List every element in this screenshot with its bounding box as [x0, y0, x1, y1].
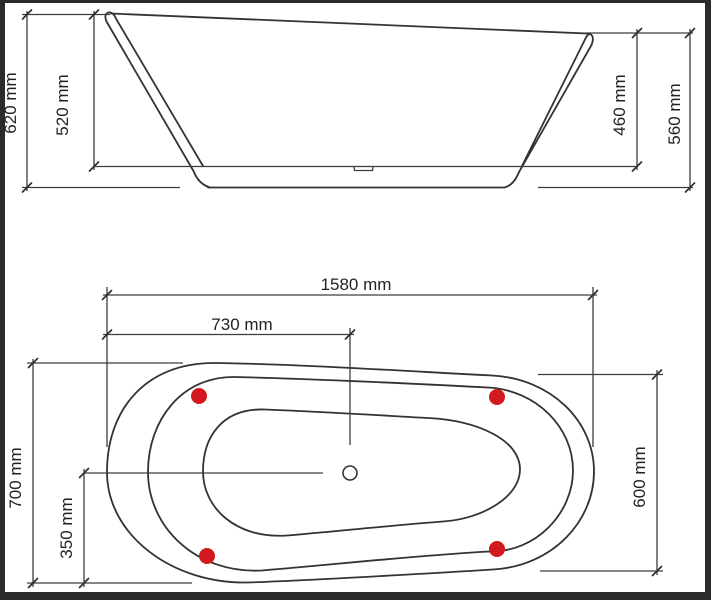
dim-620: 620 mm	[5, 10, 32, 192]
dim-460-label: 460 mm	[610, 74, 629, 135]
tub-left-wall	[105, 12, 210, 187]
dim-1580-label: 1580 mm	[321, 275, 392, 294]
dim-730-label: 730 mm	[211, 315, 272, 334]
drawing-frame: 620 mm 520 mm 460 mm 560 mm	[0, 0, 711, 600]
dim-560: 560 mm	[665, 29, 695, 193]
dim-730: 730 mm	[103, 315, 355, 339]
dim-560-label: 560 mm	[665, 83, 684, 144]
foot-dot-bottom-left	[199, 548, 215, 564]
tub-rim-line	[111, 14, 587, 34]
plan-view: 1580 mm 730 mm 700 mm 350 mm	[6, 275, 663, 588]
dim-620-label: 620 mm	[5, 72, 20, 133]
dim-700-label: 700 mm	[6, 447, 25, 508]
dim-600-label: 600 mm	[630, 446, 649, 507]
foot-dot-bottom-right	[489, 541, 505, 557]
dim-700: 700 mm	[6, 359, 38, 588]
tub-right-wall	[505, 34, 593, 187]
bathtub-technical-drawing: 620 mm 520 mm 460 mm 560 mm	[5, 3, 705, 592]
dim-350: 350 mm	[57, 469, 89, 588]
foot-dot-top-left	[191, 388, 207, 404]
side-view: 620 mm 520 mm 460 mm 560 mm	[5, 10, 695, 192]
foot-dot-top-right	[489, 389, 505, 405]
dim-460: 460 mm	[610, 29, 642, 172]
dim-520-label: 520 mm	[53, 74, 72, 135]
dim-1580: 1580 mm	[103, 275, 598, 300]
plan-middle-outline	[148, 377, 573, 571]
dim-350-label: 350 mm	[57, 497, 76, 558]
dim-600: 600 mm	[630, 370, 662, 576]
drain-circle	[343, 466, 357, 480]
dim-520: 520 mm	[53, 10, 99, 171]
